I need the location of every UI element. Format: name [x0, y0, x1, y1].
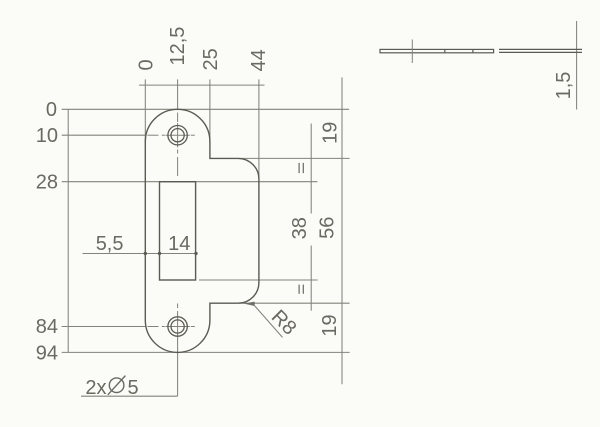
svg-text:5: 5 — [128, 377, 139, 399]
svg-text:19: 19 — [319, 314, 341, 336]
svg-text:94: 94 — [36, 342, 58, 364]
svg-text:0: 0 — [135, 59, 157, 70]
svg-text:84: 84 — [36, 316, 58, 338]
svg-text:19: 19 — [320, 122, 342, 144]
svg-text:0: 0 — [46, 99, 57, 121]
svg-text:5,5: 5,5 — [96, 233, 124, 255]
svg-text:25: 25 — [200, 48, 222, 70]
svg-text:12,5: 12,5 — [167, 27, 189, 66]
svg-text:1,5: 1,5 — [553, 72, 575, 100]
svg-text:56: 56 — [317, 217, 339, 239]
svg-text:2x: 2x — [85, 377, 106, 399]
svg-text:44: 44 — [248, 49, 270, 71]
svg-text:28: 28 — [36, 171, 58, 193]
svg-text:10: 10 — [36, 125, 58, 147]
svg-text:14: 14 — [168, 233, 190, 255]
svg-text:38: 38 — [289, 217, 311, 239]
